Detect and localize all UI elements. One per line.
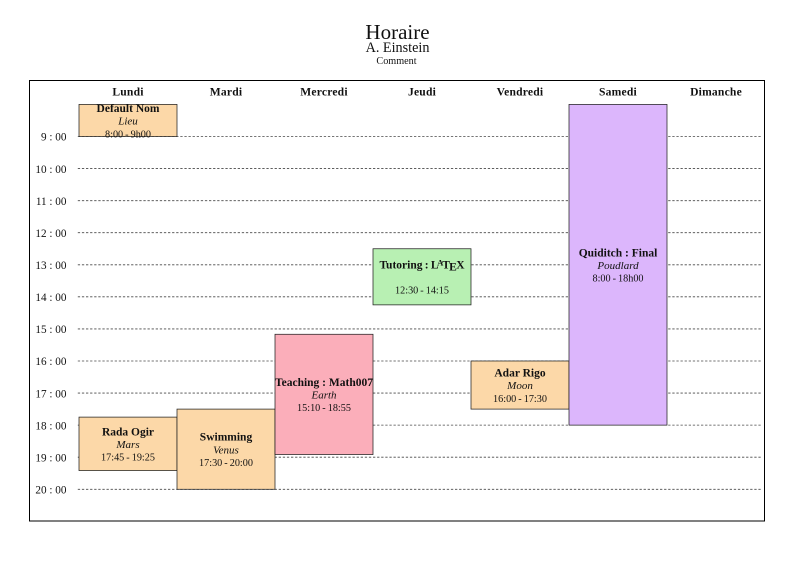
svg-text:Mars: Mars <box>115 439 139 451</box>
svg-text:16:00 - 17:30: 16:00 - 17:30 <box>493 394 547 405</box>
svg-text:Venus: Venus <box>213 444 239 456</box>
svg-text:17:30 - 20:00: 17:30 - 20:00 <box>199 458 253 469</box>
svg-text:Swimming: Swimming <box>200 432 253 444</box>
svg-text:Comment: Comment <box>376 56 416 67</box>
svg-text:Moon: Moon <box>506 380 533 392</box>
svg-text:Mardi: Mardi <box>210 86 243 99</box>
svg-text:Dimanche: Dimanche <box>690 86 742 99</box>
svg-text:A. Einstein: A. Einstein <box>366 40 430 56</box>
svg-text:Rada Ogir: Rada Ogir <box>102 426 154 438</box>
svg-text:Teaching : Math007: Teaching : Math007 <box>275 377 373 389</box>
svg-text:12 : 00: 12 : 00 <box>35 228 66 240</box>
svg-text:13 : 00: 13 : 00 <box>35 260 66 272</box>
svg-text:16 : 00: 16 : 00 <box>35 356 66 368</box>
svg-text:Default Nom: Default Nom <box>97 103 160 115</box>
svg-text:17 : 00: 17 : 00 <box>35 388 66 400</box>
svg-text:20 : 00: 20 : 00 <box>35 485 66 497</box>
svg-text:12:30 - 14:15: 12:30 - 14:15 <box>395 286 449 297</box>
svg-text:Lieu: Lieu <box>117 116 138 128</box>
svg-text:15:10 - 18:55: 15:10 - 18:55 <box>297 403 351 414</box>
svg-text:Vendredi: Vendredi <box>497 86 544 99</box>
svg-text:9 : 00: 9 : 00 <box>41 132 67 144</box>
svg-text:Poudlard: Poudlard <box>596 260 639 272</box>
svg-text:8:00 - 9h00: 8:00 - 9h00 <box>105 129 151 140</box>
svg-text:14 : 00: 14 : 00 <box>35 292 66 304</box>
svg-text:Mercredi: Mercredi <box>300 86 348 99</box>
svg-text:Lundi: Lundi <box>112 86 144 99</box>
svg-text:15 : 00: 15 : 00 <box>35 324 66 336</box>
svg-text:8:00 - 18h00: 8:00 - 18h00 <box>592 274 643 285</box>
svg-text:17:45 - 19:25: 17:45 - 19:25 <box>101 453 155 464</box>
svg-text:Samedi: Samedi <box>599 86 637 99</box>
svg-text:19 : 00: 19 : 00 <box>35 452 66 464</box>
svg-text:Jeudi: Jeudi <box>408 86 437 99</box>
svg-text:Adar Rigo: Adar Rigo <box>494 368 545 380</box>
svg-text:Quiditch : Final: Quiditch : Final <box>579 247 658 259</box>
svg-text:18 : 00: 18 : 00 <box>35 420 66 432</box>
svg-text:10 : 00: 10 : 00 <box>35 164 66 176</box>
svg-text:11 : 00: 11 : 00 <box>36 196 67 208</box>
svg-text:Earth: Earth <box>310 390 337 402</box>
